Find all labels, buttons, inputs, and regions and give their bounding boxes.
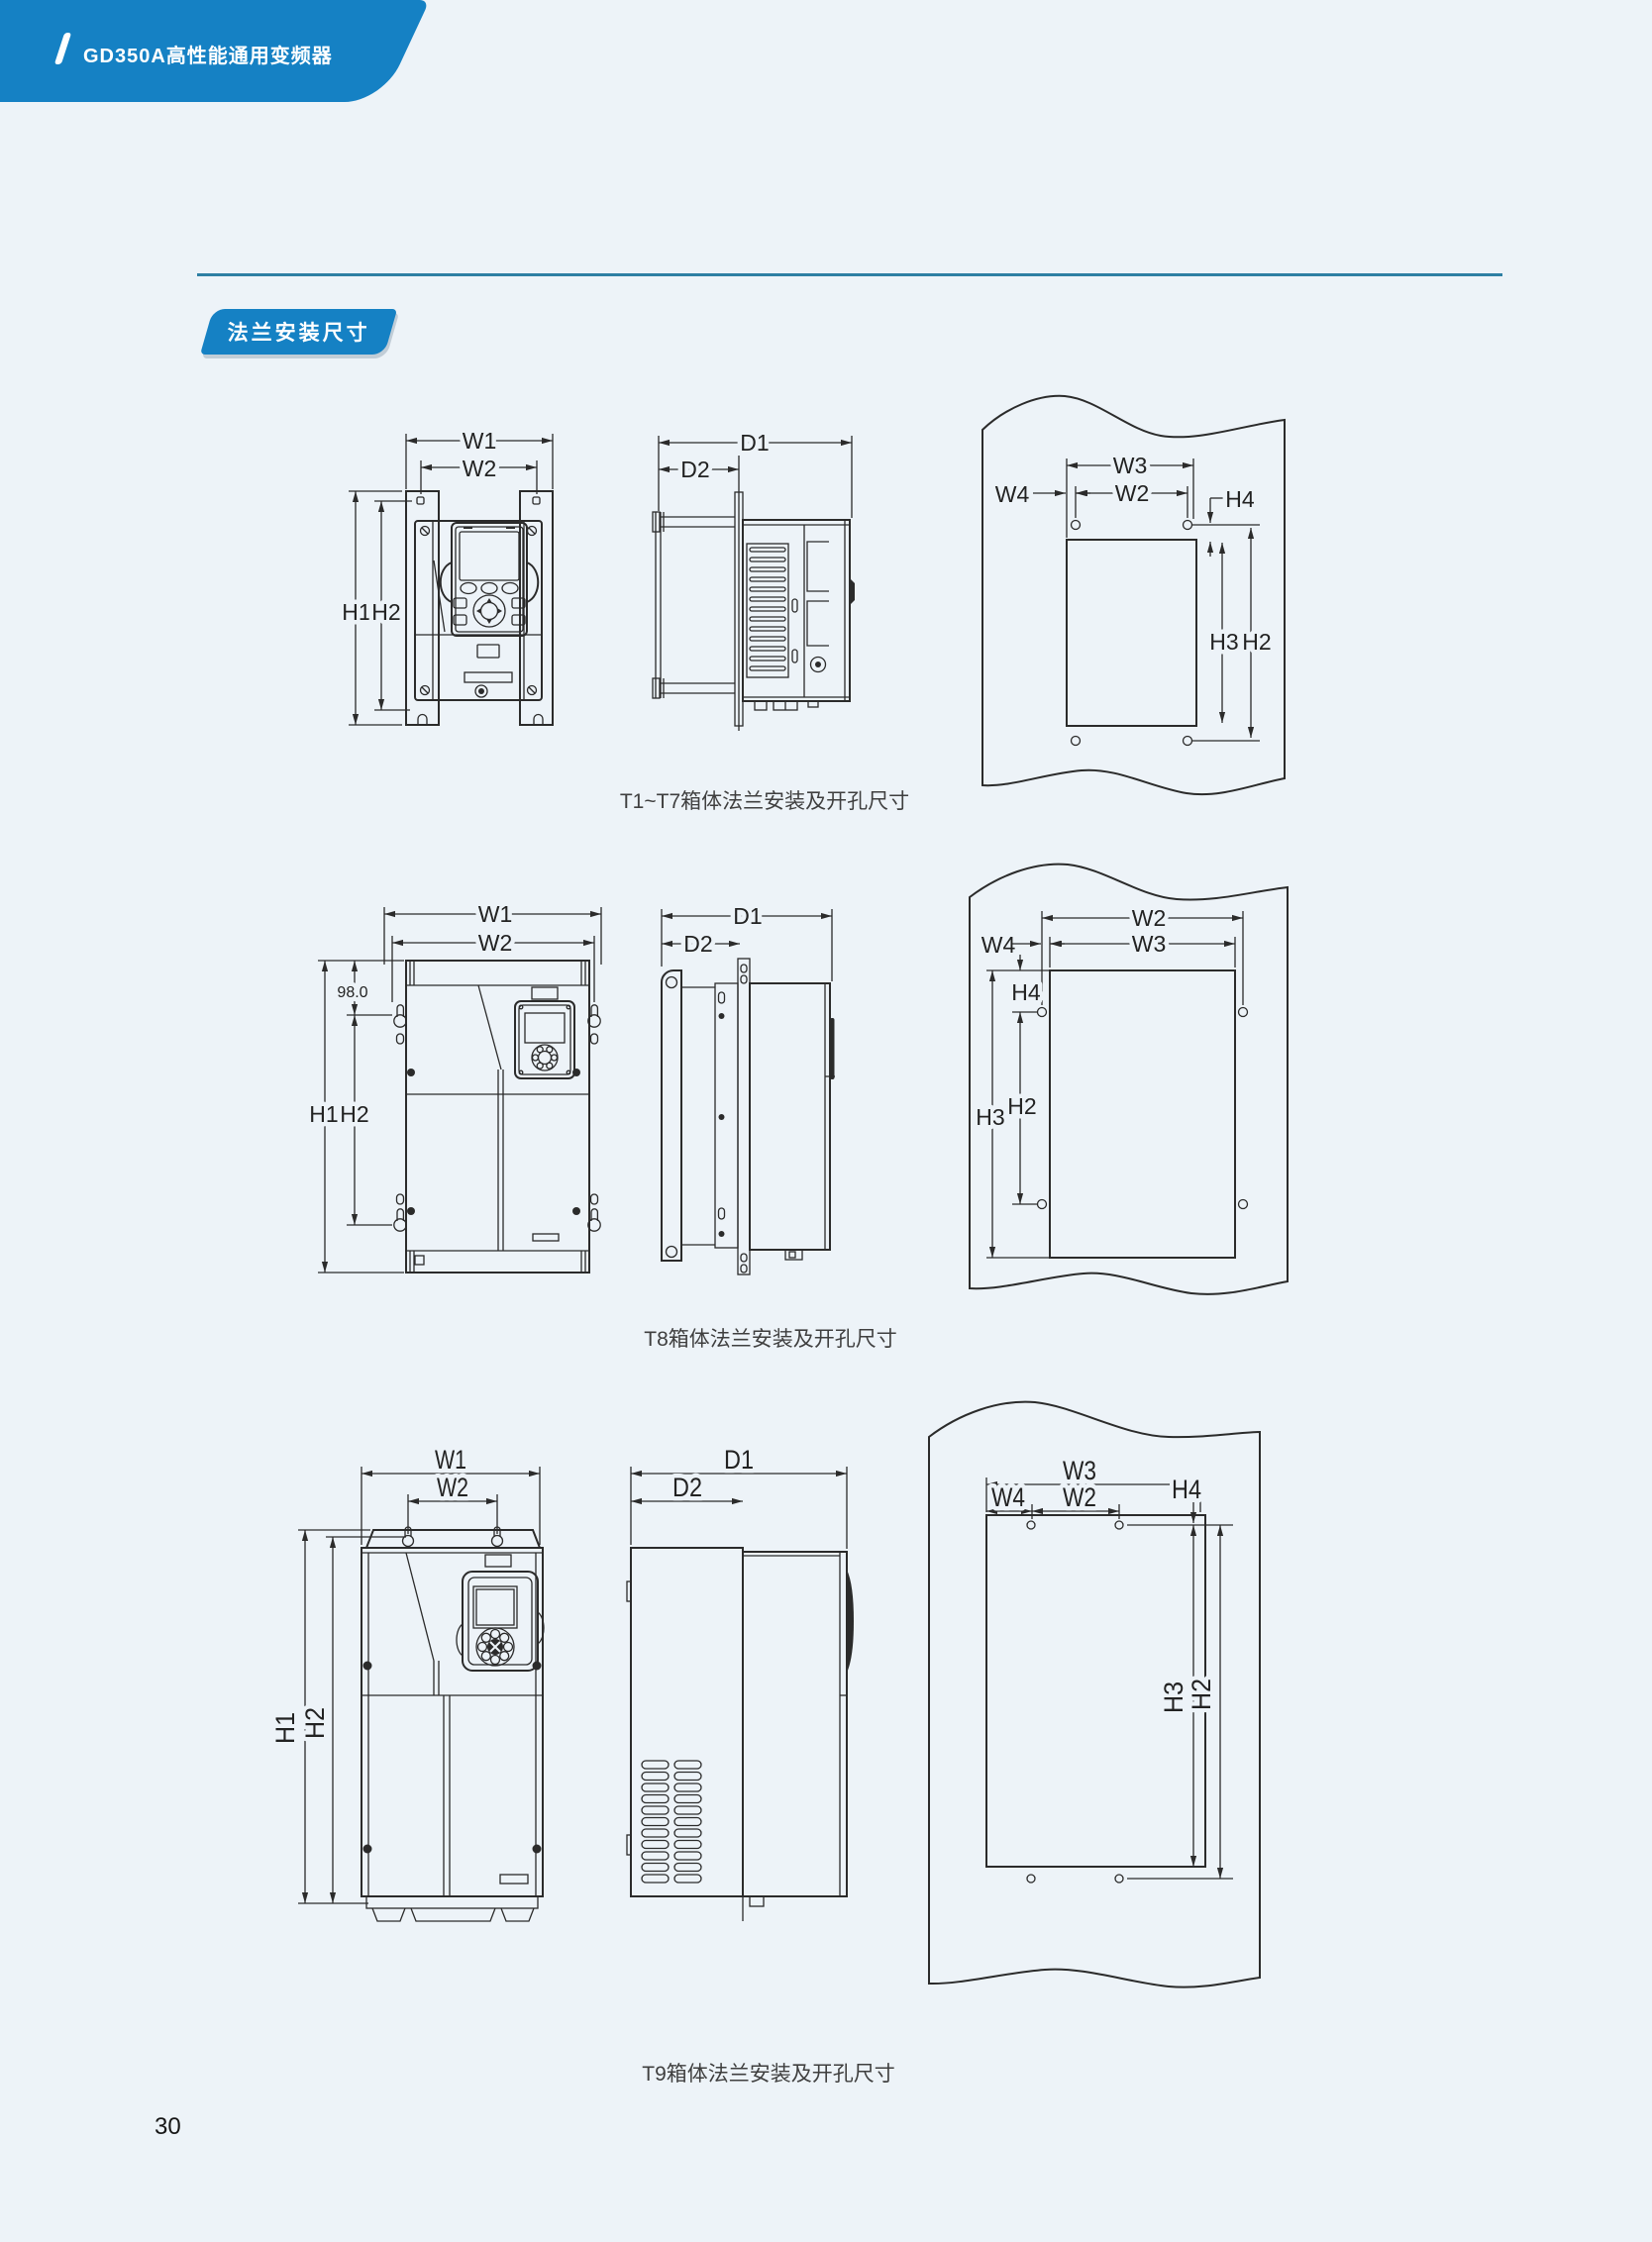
dim-offset-label: 98.0	[337, 984, 367, 1001]
dim-w2-label: W2	[1132, 905, 1167, 931]
section-tag: 法兰安装尺寸	[200, 309, 397, 355]
mounting-hole	[1184, 521, 1192, 530]
t1t7-cutout-panel: W3 W2 W4 H4 H3 H2	[931, 371, 1327, 807]
t1t7-front-view: W1 W2 H1 H2	[267, 421, 614, 812]
dim-h3-label: H3	[1159, 1681, 1188, 1713]
dim-h4-label: H4	[1172, 1475, 1201, 1504]
dim-w2-label: W2	[437, 1473, 468, 1502]
dim-w3-label: W3	[1132, 931, 1167, 957]
cutout-opening	[1067, 540, 1196, 726]
mounting-hole	[1038, 1008, 1047, 1017]
mounting-hole	[1038, 1200, 1047, 1209]
mounting-hole	[1072, 521, 1081, 530]
side-profile	[627, 1548, 854, 1921]
dim-d1-label: D1	[733, 903, 762, 929]
wall-sheet	[970, 865, 1288, 1294]
dim-w2-label: W2	[463, 456, 497, 481]
page-title: GD350A高性能通用变频器	[83, 40, 333, 68]
side-profile	[662, 959, 835, 1274]
dim-d1-label: D1	[740, 430, 769, 456]
dim-d2-label: D2	[680, 457, 709, 482]
side-profile	[653, 492, 855, 726]
keyhole-slots	[394, 1005, 600, 1231]
dim-w3-label: W3	[1113, 453, 1148, 478]
t9-side-view: D1 D2	[614, 1436, 872, 1931]
dim-h2-label: H2	[371, 599, 400, 625]
keypad-display	[460, 532, 519, 580]
dim-w1-label: W1	[435, 1445, 466, 1475]
keypad	[457, 1555, 544, 1671]
t8-side-view: D1 D2	[639, 886, 862, 1327]
t8-cutout-panel: W2 W3 W4 H4 H2 H3	[936, 862, 1332, 1327]
page-number: 30	[155, 2113, 181, 2141]
dim-d2-label: D2	[683, 931, 712, 957]
dim-h3-label: H3	[976, 1104, 1004, 1130]
dim-h1-label: H1	[309, 1101, 338, 1127]
dim-d2-label: D2	[672, 1473, 702, 1502]
section-tag-label: 法兰安装尺寸	[207, 309, 391, 355]
keypad-dial	[532, 1045, 558, 1070]
manual-page: GD350A高性能通用变频器 法兰安装尺寸 W1 W2 H1 H2	[0, 0, 1652, 2242]
dim-h4-label: H4	[1011, 979, 1041, 1005]
mounting-hole	[1239, 1008, 1248, 1017]
dim-h4-label: H4	[1225, 486, 1255, 512]
keypad	[515, 987, 574, 1078]
dim-d1-label: D1	[724, 1445, 754, 1475]
dim-h3-label: H3	[1209, 629, 1238, 655]
dim-w2-label: W2	[478, 930, 513, 956]
mounting-hole	[1072, 737, 1081, 746]
dim-h2-label: H2	[1007, 1093, 1036, 1119]
mounting-hole	[1115, 1521, 1123, 1529]
section-divider-line	[197, 273, 1502, 276]
t8-front-view: W1 W2 98.0 H1 H2	[297, 886, 634, 1327]
dim-h2-label: H2	[1242, 629, 1271, 655]
dim-w1-label: W1	[478, 901, 513, 927]
dim-h1-label: H1	[342, 599, 370, 625]
figure-caption-t1t7: T1~T7箱体法兰安装及开孔尺寸	[620, 785, 909, 815]
mounting-hole	[1027, 1875, 1035, 1883]
mounting-hole	[1115, 1875, 1123, 1883]
figure-caption-t8: T8箱体法兰安装及开孔尺寸	[644, 1323, 897, 1353]
figure-caption-t9: T9箱体法兰安装及开孔尺寸	[642, 2058, 895, 2088]
inverter-body	[406, 961, 589, 1273]
dim-w4-label: W4	[991, 1482, 1025, 1512]
brand-slash-icon	[54, 33, 71, 64]
dim-h2-label: H2	[300, 1707, 330, 1739]
dim-h2-label: H2	[340, 1101, 368, 1127]
t9-cutout-panel: W3 W4 W2 H4 H3 H2	[906, 1391, 1312, 2005]
dim-w4-label: W4	[995, 481, 1030, 507]
mounting-hole	[1239, 1200, 1248, 1209]
keypad-display	[525, 1013, 565, 1043]
cutout-opening	[1050, 970, 1235, 1258]
keypad	[441, 523, 539, 636]
mounting-hole	[1184, 737, 1192, 746]
dim-w2-label: W2	[1063, 1482, 1096, 1512]
dim-w2-label: W2	[1115, 480, 1150, 506]
keypad-display	[473, 1586, 517, 1628]
dim-w1-label: W1	[463, 428, 497, 454]
dim-w3-label: W3	[1063, 1456, 1096, 1485]
t9-front-view: W1 W2 H1 H2	[258, 1436, 594, 1931]
dim-h2-label: H2	[1187, 1679, 1216, 1710]
t1t7-side-view: D1 D2	[624, 421, 881, 812]
dim-w4-label: W4	[981, 932, 1016, 958]
vent-slots	[642, 1761, 701, 1883]
dim-h1-label: H1	[270, 1712, 300, 1744]
mounting-hole	[1027, 1521, 1035, 1529]
header-banner: GD350A高性能通用变频器	[0, 0, 430, 102]
